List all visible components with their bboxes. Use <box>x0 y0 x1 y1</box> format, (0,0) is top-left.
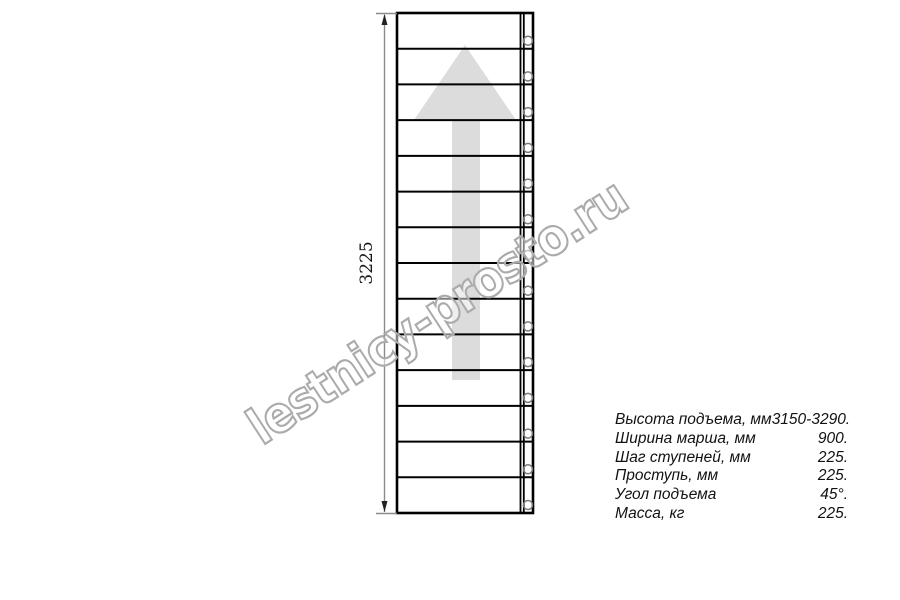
spec-row: Ширина марша, мм 900. <box>615 430 848 449</box>
dimension-arrow-up-icon <box>382 14 388 25</box>
stringer-hole-icon <box>524 143 533 152</box>
spec-label: Масса, кг <box>615 505 684 524</box>
stringer-hole-icon <box>524 393 533 402</box>
watermark-text: lestnicy-prosto.ru <box>237 168 638 456</box>
stringer-hole-icon <box>524 501 533 510</box>
stringer-hole-icon <box>524 36 533 45</box>
stringer-hole-icon <box>524 322 533 331</box>
drawing-canvas: 3225 lestnicy-prosto.ru Высота подъема, … <box>0 0 900 600</box>
spec-label: Проступь, мм <box>615 467 718 486</box>
spec-label: Ширина марша, мм <box>615 430 756 449</box>
spec-value: 225. <box>818 505 848 524</box>
spec-value: 900. <box>818 430 848 449</box>
spec-row: Проступь, мм 225. <box>615 467 848 486</box>
spec-value: 3150-3290. <box>772 411 850 430</box>
specs-table: Высота подъема, мм 3150-3290. Ширина мар… <box>615 411 848 524</box>
spec-row: Масса, кг 225. <box>615 505 848 524</box>
height-dimension: 3225 <box>357 14 397 514</box>
spec-row: Шаг ступеней, мм 225. <box>615 449 848 468</box>
spec-value: 225. <box>818 467 848 486</box>
spec-value: 225. <box>818 449 848 468</box>
stringer-hole-icon <box>524 108 533 117</box>
stringer-hole-icon <box>524 429 533 438</box>
stringer-hole-icon <box>524 72 533 81</box>
spec-row: Угол подъема 45°. <box>615 486 848 505</box>
spec-label: Угол подъема <box>615 486 716 505</box>
stringer-hole-icon <box>524 465 533 474</box>
spec-row: Высота подъема, мм 3150-3290. <box>615 411 848 430</box>
spec-value: 45°. <box>820 486 848 505</box>
spec-label: Высота подъема, мм <box>615 411 772 430</box>
dimension-arrow-down-icon <box>382 501 388 512</box>
spec-label: Шаг ступеней, мм <box>615 449 751 468</box>
stringer-hole-icon <box>524 179 533 188</box>
stringer-hole-icon <box>524 358 533 367</box>
dimension-value: 3225 <box>357 241 377 284</box>
